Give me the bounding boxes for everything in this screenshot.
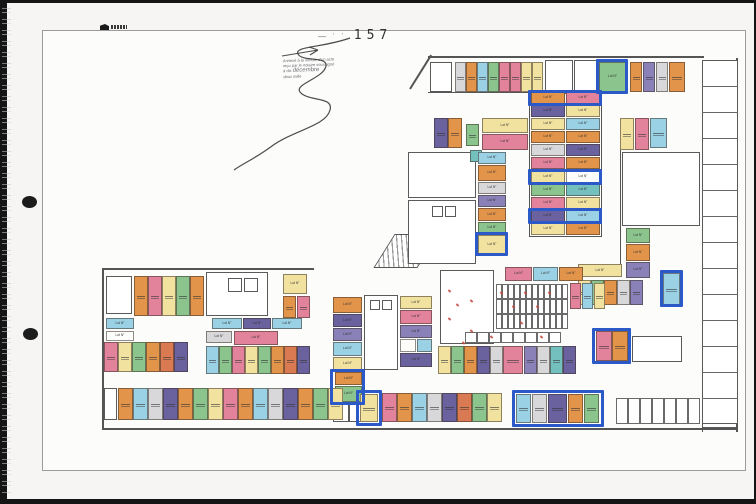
parking-unit [412,393,427,422]
unit-label: Lot N° [514,272,523,276]
parking-unit [656,62,668,92]
unit-label-smudge [165,296,173,297]
unit-label-smudge [400,407,409,408]
white-room [106,276,132,314]
unit-label-smudge [209,360,217,361]
parking-unit [630,280,643,305]
unit-label: Lot N° [544,161,553,165]
parking-unit [532,62,543,92]
unit-label: Lot N° [215,335,224,339]
unit-label-smudge [274,360,282,361]
unit-label-smudge [430,407,439,408]
unit-label: Lot N° [343,333,352,337]
corridor-divider [702,112,738,113]
storage-cell [652,398,664,424]
unit-label: Lot N° [544,188,553,192]
unit-label: Lot N° [116,334,125,338]
parking-unit [620,118,634,150]
unit-label-smudge [501,77,507,78]
parking-unit [298,388,313,420]
parking-unit [232,346,245,374]
parking-unit [162,276,176,316]
unit-label-smudge [121,404,130,405]
unit-label-smudge [196,404,205,405]
storage-cell [628,398,640,424]
parking-unit [604,280,617,305]
unit-label-smudge [437,133,445,134]
unit-label-smudge [211,404,220,405]
corridor-divider [702,138,738,139]
unit-label: Lot N° [412,301,421,305]
parking-unit: Lot N° [566,118,600,130]
unit-label-smudge [445,407,454,408]
parking-unit [219,346,232,374]
service-room [228,278,242,292]
parking-unit [472,393,487,422]
parking-unit [630,62,642,92]
parking-unit: Lot N° [478,165,506,181]
unit-label-smudge [653,133,664,134]
door-mark [462,341,466,344]
wall [428,56,704,58]
unit-label-smudge [301,404,310,405]
unit-label-smudge [490,77,496,78]
unit-label-smudge [177,357,185,358]
parking-unit [174,342,188,372]
unit-label: Lot N° [541,272,550,276]
parking-unit: Lot N° [212,318,242,329]
parking-unit: Lot N° [566,223,600,235]
unit-label-smudge [468,77,474,78]
unit-label: Lot N° [544,109,553,113]
parking-unit [487,393,502,422]
service-room [445,206,456,217]
parking-unit: Lot N° [533,267,558,281]
parking-unit [223,388,238,420]
parking-unit: Lot N° [531,223,565,235]
unit-label-smudge [527,360,535,361]
unit-label-smudge [179,296,187,297]
unit-label-smudge [454,360,462,361]
parking-unit [268,388,283,420]
parking-unit [178,388,193,420]
corridor-divider [702,346,738,347]
unit-label: Lot N° [488,213,497,217]
parking-unit [148,276,162,316]
parking-unit [466,62,477,92]
unit-label: Lot N° [544,148,553,152]
unit-label: Lot N° [343,362,352,366]
unit-label-smudge [633,77,640,78]
parking-unit [297,296,310,318]
parking-unit [382,393,397,422]
highlight-box [356,390,382,426]
unit-label-smudge [163,357,171,358]
parking-unit [521,62,532,92]
parking-unit: Lot N° [559,267,583,281]
unit-label-smudge [135,357,143,358]
parking-unit [283,388,298,420]
unit-label-smudge [620,292,628,293]
storage-cell [616,398,628,424]
parking-unit: Lot N° [578,264,622,277]
unit-label-smudge [460,407,469,408]
unit-label: Lot N° [579,122,588,126]
unit-label: Lot N° [544,135,553,139]
parking-unit: Lot N° [400,325,432,338]
unit-label: Lot N° [488,186,497,190]
unit-label-smudge [633,292,641,293]
highlight-box [528,169,602,185]
unit-label-smudge [512,77,518,78]
parking-unit: Lot N° [531,118,565,130]
unit-label-smudge [193,296,201,297]
unit-label-smudge [286,404,295,405]
highlight-box [596,59,628,94]
parking-unit [208,388,223,420]
unit-label-smudge [659,77,666,78]
unit-label: Lot N° [291,282,300,286]
parking-unit [563,346,576,374]
parking-unit: Lot N° [626,262,650,278]
unit-label: Lot N° [634,251,643,255]
parking-unit [104,342,118,372]
unit-label-smudge [646,77,653,78]
corridor-divider [702,190,738,191]
parking-unit [550,346,563,374]
parking-unit: Lot N° [333,342,362,356]
parking-unit [245,346,258,374]
parking-unit [190,276,204,316]
parking-unit [284,346,297,374]
unit-label-smudge [137,296,145,297]
corridor-divider [702,320,738,321]
parking-unit [148,388,163,420]
parking-unit [503,346,523,374]
parking-unit [313,388,328,420]
parking-unit [466,124,479,146]
unit-label: Lot N° [579,148,588,152]
parking-unit [457,393,472,422]
white-room [632,336,682,362]
unit-label-smudge [235,360,243,361]
parking-unit: Lot N° [400,353,432,367]
parking-unit [297,346,310,374]
parking-unit: Lot N° [626,244,650,261]
white-room [408,152,476,198]
unit-label: Lot N° [343,319,352,323]
unit-label-smudge [638,134,646,135]
corridor-divider [702,86,738,87]
parking-unit [118,342,132,372]
highlight-box [528,90,602,106]
parking-unit [253,388,268,420]
highlight-box [512,390,604,427]
corridor-divider [702,294,738,295]
cave-cell [525,332,537,343]
corridor-divider [702,164,738,165]
parking-unit: Lot N° [531,144,565,156]
parking-unit: Lot N° [531,184,565,196]
unit-label: Lot N° [579,135,588,139]
unit-label: Lot N° [579,201,588,205]
unit-label: Lot N° [412,358,421,362]
parking-unit [258,346,271,374]
unit-label-smudge [121,357,129,358]
parking-unit: Lot N° [482,134,528,150]
unit-label-smudge [553,360,561,361]
unit-label: Lot N° [412,315,421,319]
parking-unit [206,346,219,374]
cave-cell [562,314,568,329]
unit-label-smudge [441,360,449,361]
parking-unit [490,346,503,374]
cave-cell [465,332,477,343]
parking-unit: Lot N° [400,296,432,309]
parking-unit: Lot N° [566,131,600,143]
parking-unit [193,388,208,420]
parking-unit [477,62,488,92]
highlight-box [592,328,631,364]
service-room [244,278,258,292]
service-room [382,300,392,310]
parking-unit: Lot N° [283,274,307,294]
unit-label: Lot N° [488,226,497,230]
parking-unit: Lot N° [478,152,506,164]
service-room [370,300,380,310]
parking-unit [132,342,146,372]
wall-diagonal [409,55,432,90]
parking-unit [238,388,253,420]
unit-label: Lot N° [343,303,352,307]
unit-label: Lot N° [567,272,576,276]
parking-unit [434,118,448,148]
storage-cell [676,398,688,424]
unit-label-smudge [475,407,484,408]
parking-unit: Lot N° [478,182,506,194]
parking-unit [448,118,462,148]
parking-unit [650,118,667,148]
parking-unit [283,296,296,318]
unit-label-smudge [300,360,308,361]
parking-unit [133,388,148,420]
parking-unit [617,280,630,305]
parking-unit [537,346,550,374]
parking-unit [427,393,442,422]
unit-label: Lot N° [488,171,497,175]
unit-label: Lot N° [488,199,497,203]
wall [620,150,621,266]
parking-unit [455,62,466,92]
unit-label-smudge [271,404,280,405]
parking-unit [163,388,178,420]
parking-unit [146,342,160,372]
unit-label: Lot N° [283,322,292,326]
parking-unit [451,346,464,374]
unit-label-smudge [623,134,631,135]
parking-unit [176,276,190,316]
unit-label-smudge [256,404,265,405]
unit-label-smudge [480,360,488,361]
parking-unit [570,283,581,309]
unit-label: Lot N° [544,227,553,231]
cave-cell [562,299,568,314]
unit-label: Lot N° [544,122,553,126]
unit-label-smudge [286,307,294,308]
unit-label: Lot N° [634,234,643,238]
highlight-box [475,232,508,256]
unit-label-smudge [181,404,190,405]
parking-unit: Lot N° [531,131,565,143]
parking-unit [438,346,451,374]
storage-cell [640,398,652,424]
parking-unit [464,346,477,374]
unit-label-smudge [493,360,501,361]
unit-label-smudge [672,77,682,78]
parking-unit: Lot N° [106,331,134,341]
wall [102,268,314,270]
unit-label-smudge [490,407,499,408]
highlight-box [660,270,683,307]
unit-label: Lot N° [544,201,553,205]
corridor-divider [702,242,738,243]
storage-cell [664,398,676,424]
wall [529,236,602,237]
unit-label-smudge [534,77,540,78]
unit-label-smudge [222,360,230,361]
parking-unit [271,346,284,374]
cave-cell [513,332,525,343]
unit-label: Lot N° [253,322,262,326]
corridor-divider [702,398,738,399]
unit-label: Lot N° [343,347,352,351]
unit-label-smudge [584,296,590,297]
unit-label-smudge [136,404,145,405]
parking-unit: Lot N° [482,118,528,133]
unit-label-smudge [149,357,157,358]
unit-label-smudge [479,77,485,78]
white-room [104,388,117,420]
white-room [622,152,700,226]
service-room [432,206,443,217]
wall [102,428,738,430]
unit-label-smudge [316,404,325,405]
unit-label: Lot N° [634,268,643,272]
parking-unit: Lot N° [566,184,600,196]
parking-unit: Lot N° [243,318,271,329]
unit-label: Lot N° [488,156,497,160]
unit-label: Lot N° [596,269,605,273]
unit-label: Lot N° [579,188,588,192]
parking-unit [160,342,174,372]
parking-unit [643,62,655,92]
parking-unit: Lot N° [106,318,134,329]
unit-label-smudge [241,404,250,405]
storage-cell [688,398,700,424]
unit-label-smudge [523,77,529,78]
unit-label-smudge [457,77,463,78]
white-room [430,62,452,92]
parking-unit: Lot N° [206,331,232,343]
unit-label-smudge [467,360,475,361]
unit-label-smudge [596,296,602,297]
highlight-box [528,208,602,224]
floor-plan: Lot N°Lot N°Lot N°Lot N°Lot N°Lot N°Lot … [0,0,756,504]
unit-label: Lot N° [223,322,232,326]
parking-unit: Lot N° [566,144,600,156]
parking-unit: Lot N° [531,157,565,169]
parking-unit [499,62,510,92]
unit-label-smudge [226,404,235,405]
cave-cell [562,284,568,299]
unit-label-smudge [151,296,159,297]
unit-label: Lot N° [579,109,588,113]
parking-unit: Lot N° [505,267,532,281]
parking-unit: Lot N° [478,208,506,221]
parking-unit [477,346,490,374]
parking-unit: Lot N° [566,105,600,117]
parking-unit: Lot N° [234,331,278,345]
parking-unit [417,339,432,352]
parking-unit [635,118,649,150]
unit-label-smudge [607,292,615,293]
cave-cell [501,332,513,343]
parking-unit: Lot N° [626,228,650,243]
unit-label-smudge [300,307,308,308]
parking-unit: Lot N° [566,157,600,169]
parking-unit: Lot N° [272,318,302,329]
parking-unit [582,283,593,309]
parking-unit [134,276,148,316]
unit-label-smudge [451,133,459,134]
unit-label-smudge [248,360,256,361]
parking-unit [669,62,685,92]
parking-unit [397,393,412,422]
parking-unit [488,62,499,92]
parking-unit: Lot N° [333,297,362,313]
parking-unit [524,346,537,374]
unit-label-smudge [415,407,424,408]
cave-cell [549,332,561,343]
wall [428,92,528,93]
unit-label-smudge [540,360,548,361]
unit-label-smudge [385,407,394,408]
unit-label: Lot N° [252,336,261,340]
parking-unit [400,339,416,352]
parking-unit: Lot N° [400,310,432,324]
unit-label-smudge [107,357,115,358]
unit-label: Lot N° [579,161,588,165]
unit-label-smudge [166,404,175,405]
white-room [545,60,573,94]
unit-label: Lot N° [116,322,125,326]
unit-label: Lot N° [501,124,510,128]
parking-unit [510,62,521,92]
parking-unit [442,393,457,422]
parking-unit: Lot N° [531,105,565,117]
unit-label-smudge [566,360,574,361]
unit-label-smudge [287,360,295,361]
unit-label: Lot N° [501,140,510,144]
parking-unit: Lot N° [333,314,362,327]
unit-label-smudge [151,404,160,405]
corridor-divider [702,372,738,373]
scanned-floorplan-page: — ˈ ˈ157 Annexé à la minute d'un acte re… [0,0,756,504]
unit-label-smudge [261,360,269,361]
unit-label-smudge [572,296,578,297]
parking-unit [594,283,605,309]
corridor-divider [702,268,738,269]
